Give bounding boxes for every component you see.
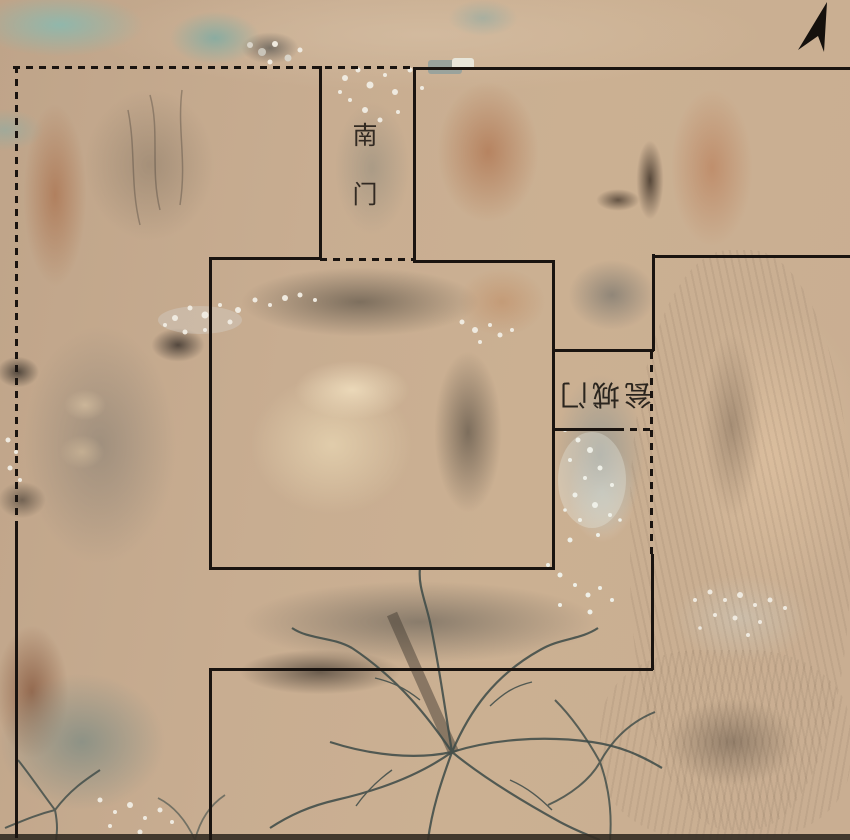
north-wall-dash-edge [842,67,850,70]
south-gate-opening-dashed [320,258,416,261]
enclosure-east-wall [552,260,555,570]
aerial-photo-background [0,0,850,840]
barbican-gate-dashed [617,428,652,431]
site-plan-figure: 南门 瓮城门 [0,0,850,840]
barbican-north-dash-edge [842,255,850,258]
south-gate-corridor-west-wall [319,66,322,260]
barbican-east-wall-south [651,554,654,670]
enclosure-north-wall-west-segment [209,257,321,260]
barbican-east-wall-north [652,254,655,351]
north-arrow-icon [788,0,836,58]
barbican-north-wall [652,255,842,258]
south-gate-label: 南门 [351,122,376,240]
south-annex-north-wall [209,668,653,671]
photo-edge-shadow [0,834,850,840]
enclosure-south-wall [209,567,555,570]
trench-boundary-solid-west [15,526,18,838]
trench-boundary-dashed-west [15,66,18,528]
barbican-inner-wall [552,349,654,352]
south-gate-corridor-east-wall [413,68,416,262]
enclosure-west-wall [209,257,212,569]
trench-boundary-dashed-north [13,66,413,69]
barbican-gate-solid [552,428,619,431]
enclosure-north-wall-east-segment [413,260,554,263]
south-annex-west-wall [209,668,212,840]
barbican-gate-label: 瓮城门 [554,376,654,412]
north-boundary-solid [413,67,842,70]
